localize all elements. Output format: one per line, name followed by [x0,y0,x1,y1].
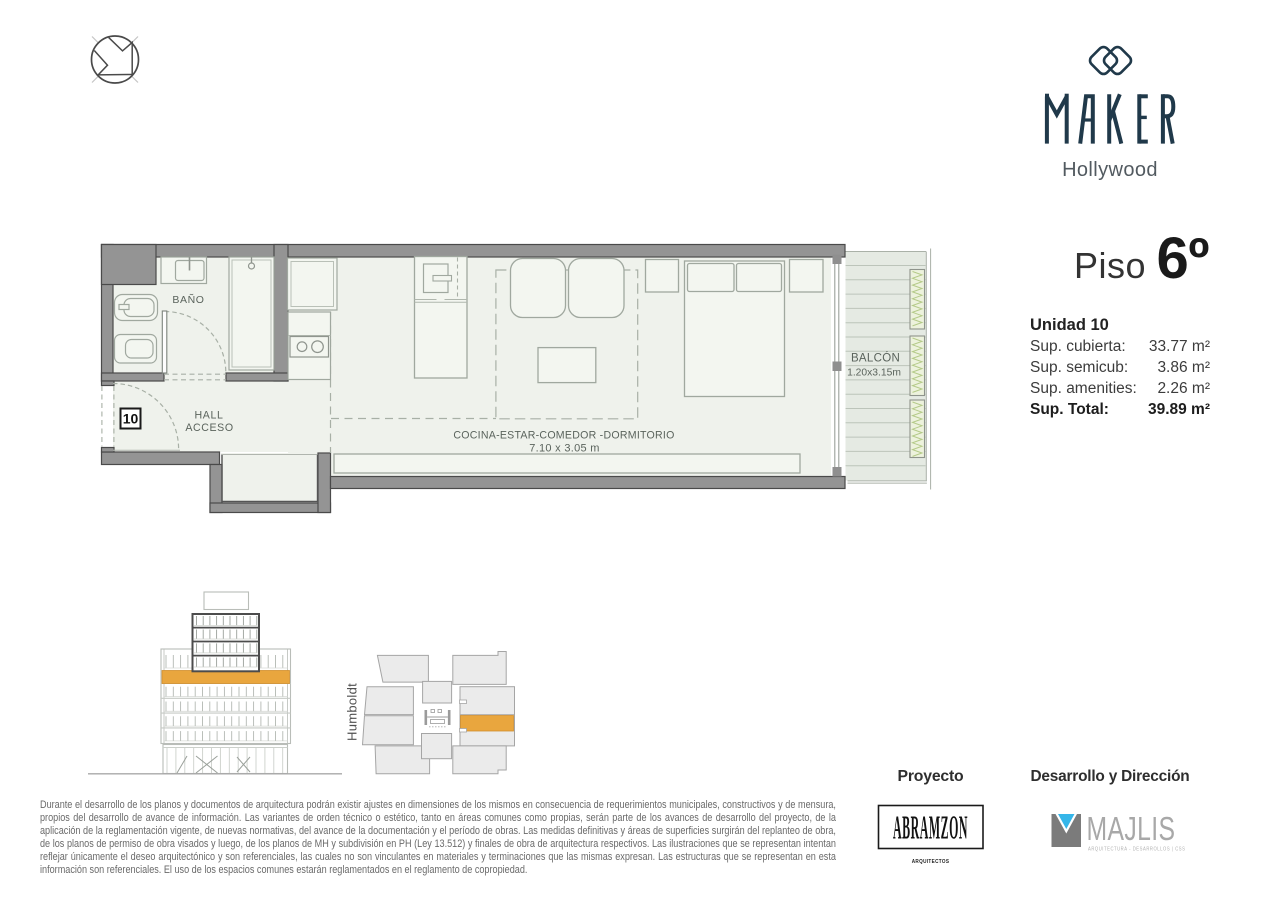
svg-text:HALL: HALL [195,410,224,422]
svg-text:Humboldt: Humboldt [345,683,360,741]
svg-text:BAÑO: BAÑO [172,293,204,306]
svg-text:1.20x3.15m: 1.20x3.15m [847,368,901,379]
svg-text:BALCÓN: BALCÓN [851,352,900,365]
svg-text:MAJLIS: MAJLIS [1087,812,1176,848]
svg-text:ABRAMZON: ABRAMZON [893,808,968,847]
svg-text:ARQUITECTURA - DESARROLLOS | C: ARQUITECTURA - DESARROLLOS | CSS [1088,846,1185,853]
svg-text:10: 10 [123,411,139,427]
svg-text:COCINA-ESTAR-COMEDOR -DORMITOR: COCINA-ESTAR-COMEDOR -DORMITORIO [453,429,674,441]
svg-text:ACCESO: ACCESO [185,422,233,434]
svg-text:ARQUITECTOS: ARQUITECTOS [912,859,950,865]
svg-text:7.10 x 3.05 m: 7.10 x 3.05 m [529,443,600,455]
